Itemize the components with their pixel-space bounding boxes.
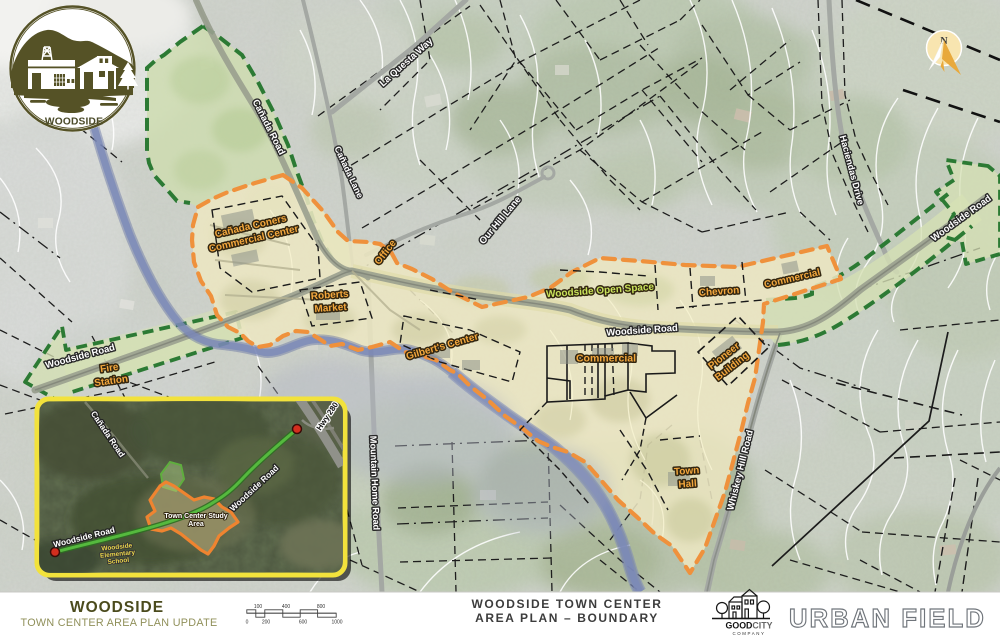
svg-text:URBAN FIELD: URBAN FIELD (789, 605, 986, 633)
svg-text:Town Center Study: Town Center Study (164, 513, 227, 520)
svg-text:COMPANY: COMPANY (732, 631, 765, 636)
svg-text:800: 800 (317, 604, 326, 610)
svg-text:Hall: Hall (678, 478, 697, 490)
svg-text:GOODCITY: GOODCITY (726, 621, 773, 631)
svg-text:1000: 1000 (331, 620, 342, 626)
svg-text:Commercial: Commercial (576, 353, 636, 365)
svg-text:WOODSIDE: WOODSIDE (70, 599, 164, 616)
svg-text:600: 600 (299, 620, 308, 626)
svg-text:TOWN CENTER AREA PLAN UPDATE: TOWN CENTER AREA PLAN UPDATE (21, 617, 218, 629)
svg-text:0: 0 (246, 620, 249, 626)
svg-text:Town: Town (674, 465, 700, 478)
svg-text:Area: Area (188, 521, 204, 528)
svg-text:AREA PLAN – BOUNDARY: AREA PLAN – BOUNDARY (475, 611, 659, 625)
svg-text:100: 100 (254, 604, 263, 610)
svg-text:WOODSIDE TOWN CENTER: WOODSIDE TOWN CENTER (471, 597, 662, 611)
svg-text:WOODSIDE: WOODSIDE (45, 117, 103, 128)
svg-text:200: 200 (262, 620, 271, 626)
svg-text:Market: Market (314, 302, 348, 315)
svg-text:400: 400 (282, 604, 291, 610)
